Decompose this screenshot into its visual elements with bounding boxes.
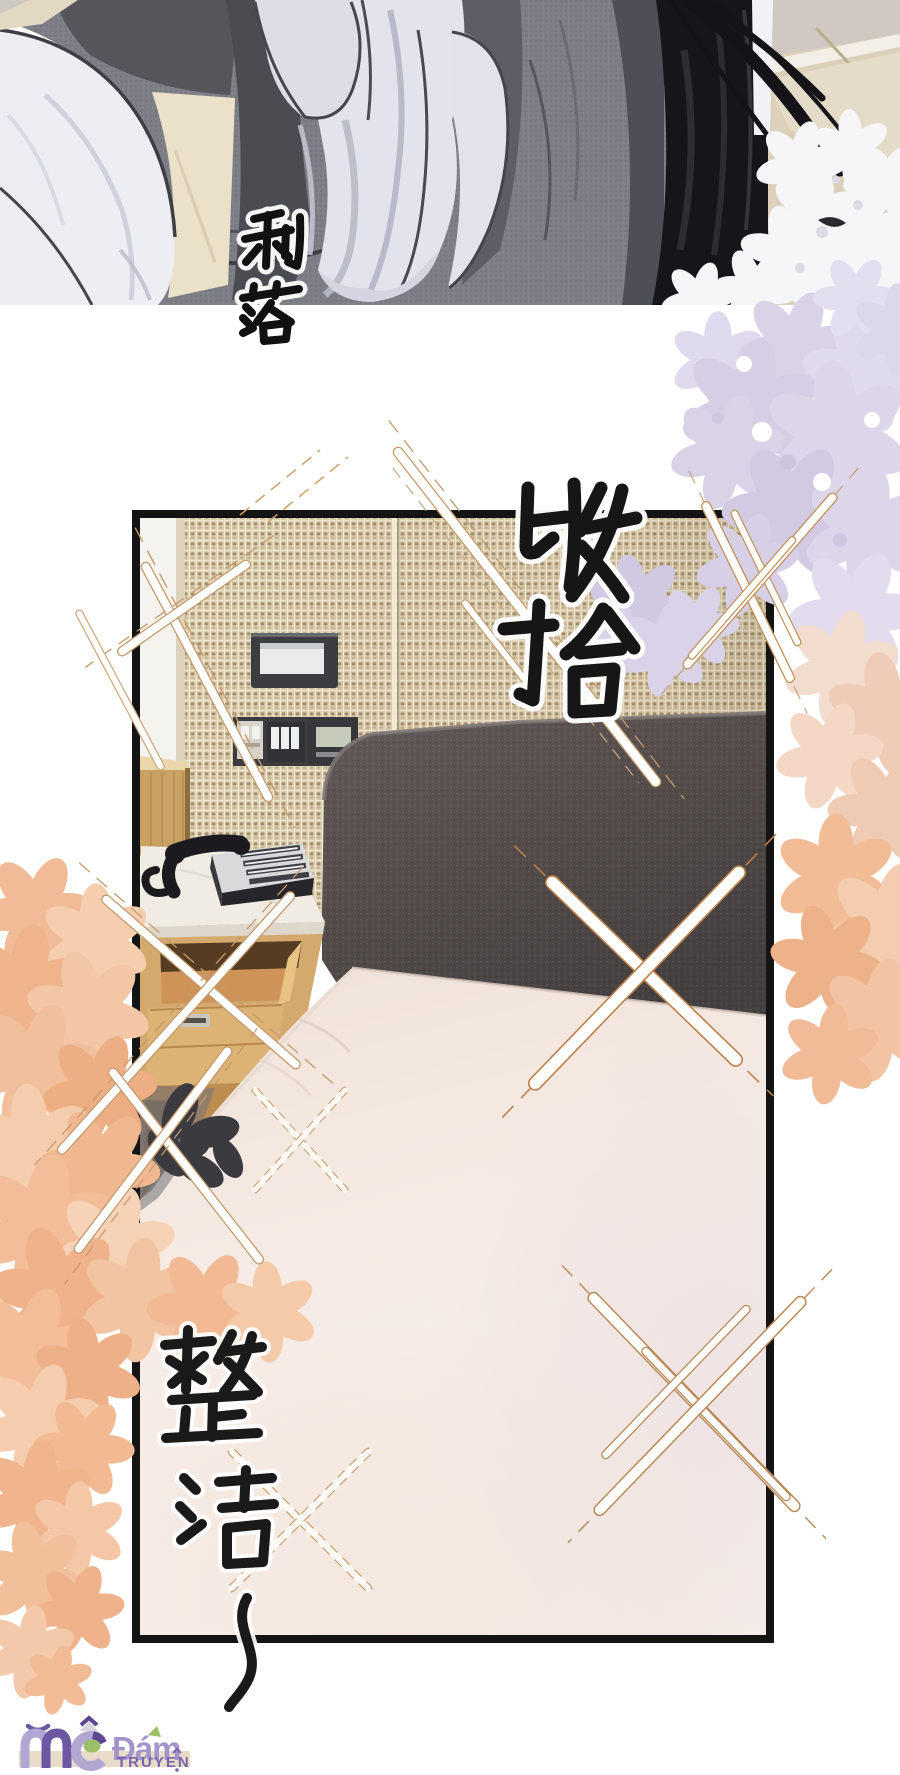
svg-text:TRUYEN: TRUYEN <box>117 1754 191 1771</box>
